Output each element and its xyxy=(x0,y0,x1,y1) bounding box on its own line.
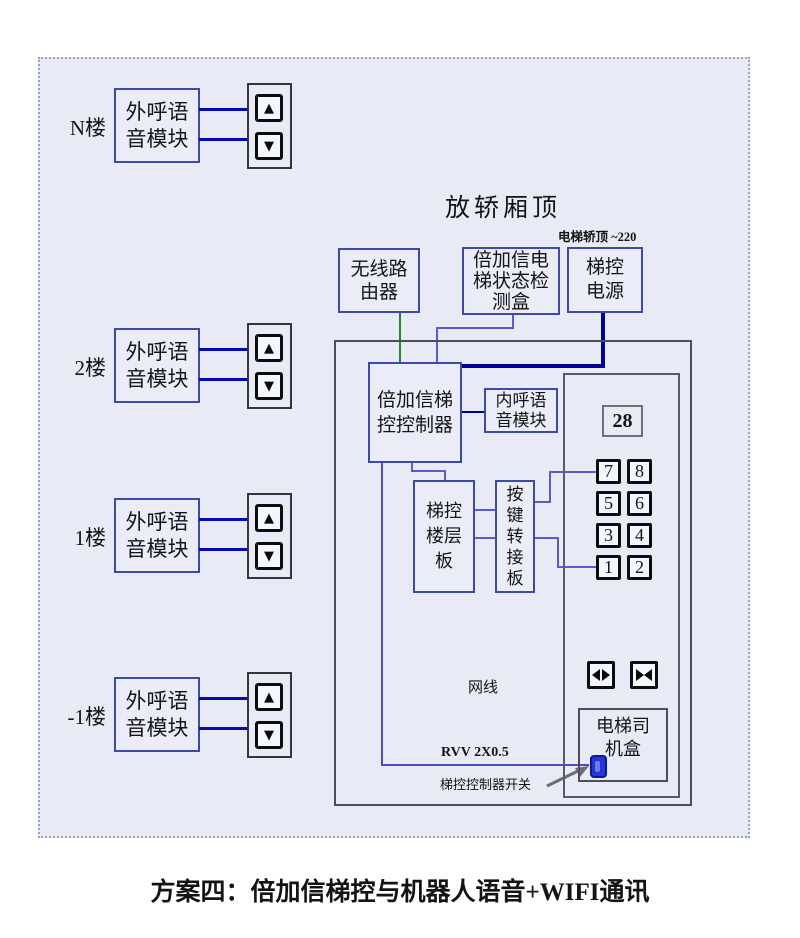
up-button: ▲ xyxy=(255,683,283,711)
power-switch-icon xyxy=(590,755,607,778)
down-button: ▼ xyxy=(255,132,283,160)
down-button: ▼ xyxy=(255,372,283,400)
floor-button-5: 5 xyxy=(596,491,621,516)
outdoor-voice-module-box: 外呼语 音模块 xyxy=(114,498,200,573)
down-button: ▼ xyxy=(255,542,283,570)
wire xyxy=(199,727,249,730)
elevator-control-power-box: 梯控 电源 xyxy=(567,247,643,313)
door-close-button xyxy=(630,661,658,689)
wire xyxy=(199,697,249,700)
up-arrow-icon: ▲ xyxy=(264,342,274,355)
outdoor-voice-module-box: 外呼语 音模块 xyxy=(114,677,200,752)
controller-switch-label: 梯控控制器开关 xyxy=(440,774,531,793)
wire xyxy=(199,108,249,111)
floor-label: 1楼 xyxy=(40,522,106,548)
floor-unit-minus1: -1楼 外呼语 音模块 ▲ ▼ xyxy=(0,672,300,762)
up-button: ▲ xyxy=(255,334,283,362)
floor-button-4: 4 xyxy=(627,523,652,548)
floor-button-2: 2 xyxy=(627,555,652,580)
floor-unit-1: 1楼 外呼语 音模块 ▲ ▼ xyxy=(0,493,300,583)
key-adapter-board-box: 按 键 转 接 板 xyxy=(495,480,535,593)
floor-unit-2: 2楼 外呼语 音模块 ▲ ▼ xyxy=(0,323,300,413)
floor-display: 28 xyxy=(602,405,643,437)
floor-button-7: 7 xyxy=(596,459,621,484)
down-arrow-icon: ▼ xyxy=(264,140,274,153)
floor-unit-n: N楼 外呼语 音模块 ▲ ▼ xyxy=(0,83,300,173)
up-button: ▲ xyxy=(255,504,283,532)
call-button-panel: ▲ ▼ xyxy=(247,83,292,169)
up-arrow-icon: ▲ xyxy=(264,691,274,704)
down-button: ▼ xyxy=(255,721,283,749)
wireless-router-box: 无线路 由器 xyxy=(338,248,420,313)
floor-button-1: 1 xyxy=(596,555,621,580)
wire xyxy=(199,348,249,351)
floor-button-6: 6 xyxy=(627,491,652,516)
outdoor-voice-module-box: 外呼语 音模块 xyxy=(114,88,200,163)
floor-label: N楼 xyxy=(40,112,106,138)
door-open-icon-right xyxy=(602,669,610,681)
call-button-panel: ▲ ▼ xyxy=(247,672,292,758)
floor-label: 2楼 xyxy=(40,352,106,378)
outdoor-voice-module-box: 外呼语 音模块 xyxy=(114,328,200,403)
elevator-status-detector-box: 倍加信电 梯状态检 测盒 xyxy=(462,247,560,315)
door-close-icon-right xyxy=(644,669,652,681)
section-title: 放轿厢顶 xyxy=(418,188,588,224)
cable-spec-label: RVV 2X0.5 xyxy=(441,745,509,761)
floor-board-box: 梯控 楼层 板 xyxy=(413,480,475,593)
call-button-panel: ▲ ▼ xyxy=(247,323,292,409)
door-open-icon xyxy=(592,669,600,681)
power-source-note: 电梯轿顶 ~220 xyxy=(558,226,668,245)
call-button-panel: ▲ ▼ xyxy=(247,493,292,579)
floor-button-3: 3 xyxy=(596,523,621,548)
up-button: ▲ xyxy=(255,94,283,122)
network-cable-label: 网线 xyxy=(468,676,498,697)
down-arrow-icon: ▼ xyxy=(264,729,274,742)
up-arrow-icon: ▲ xyxy=(264,102,274,115)
door-open-button xyxy=(587,661,615,689)
door-close-icon xyxy=(636,669,644,681)
floor-label: -1楼 xyxy=(40,701,106,727)
wire xyxy=(199,138,249,141)
down-arrow-icon: ▼ xyxy=(264,550,274,563)
wire xyxy=(199,548,249,551)
floor-button-8: 8 xyxy=(627,459,652,484)
wire xyxy=(199,378,249,381)
elevator-controller-box: 倍加信梯 控控制器 xyxy=(368,362,462,463)
wire xyxy=(199,518,249,521)
up-arrow-icon: ▲ xyxy=(264,512,274,525)
figure-caption: 方案四：倍加信梯控与机器人语音+WIFI通讯 xyxy=(0,872,800,908)
down-arrow-icon: ▼ xyxy=(264,380,274,393)
car-voice-module-box: 内呼语 音模块 xyxy=(484,388,558,433)
